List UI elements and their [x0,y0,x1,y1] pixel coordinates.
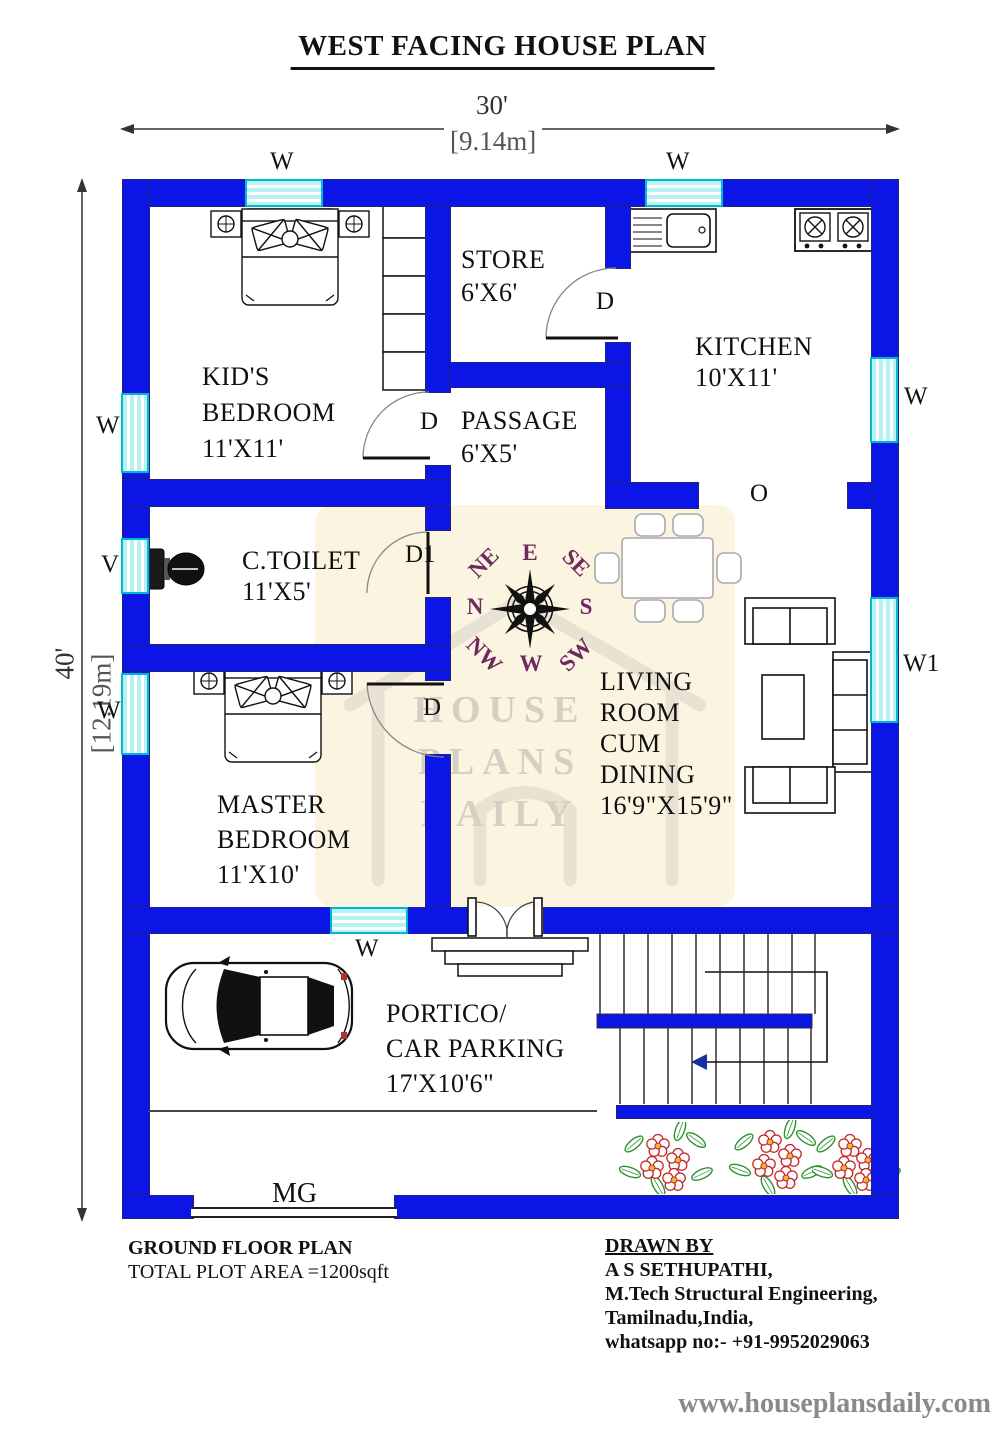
door-main-entrance [460,896,554,940]
window-master-bottom [330,907,408,934]
wall-interior [426,755,450,908]
compass-east: E [508,540,552,566]
label-door-kids: D [420,408,438,436]
window-kitchen-right [870,357,898,443]
room-label-living: LIVING ROOM CUM DINING 16'9"X15'9" [600,666,733,821]
wall-house-bottom [408,908,468,933]
room-label-passage: PASSAGE 6'X5' [461,404,578,470]
kitchen-sink [626,208,718,254]
staircase [595,930,873,1108]
label-window-kitchen-right: W [904,383,928,411]
ventilator-toilet [121,538,149,594]
wall-interior [606,206,630,268]
window-kids-left [121,393,149,473]
wall-bottom-left [123,1196,193,1218]
window-master-left [121,673,149,755]
floor-plan-canvas: WEST FACING HOUSE PLAN 30' [9.14m] 40' [… [0,0,1005,1433]
label-window-master-left: W [97,697,121,725]
wall-interior [123,645,450,671]
plan-name: GROUND FLOOR PLAN [128,1237,352,1260]
wall-interior [426,206,450,392]
label-door-store: D [596,288,614,316]
author-location: Tamilnadu,India, [605,1307,753,1330]
portico-edge-line [148,1110,597,1112]
dim-height-ft: 40' [50,639,81,689]
kids-bed [210,203,370,307]
label-door-master: D [423,694,441,722]
wall-interior [123,480,450,506]
dim-width-ft: 30' [476,90,508,121]
room-label-portico: PORTICO/ CAR PARKING 17'X10'6" [386,996,565,1101]
window-living-right [870,597,898,723]
dim-width-m: [9.14m] [444,126,542,157]
author-name: A S SETHUPATHI, [605,1259,773,1282]
wall-house-bottom [544,908,898,933]
kids-wardrobe [381,198,429,392]
page-title: WEST FACING HOUSE PLAN [290,30,715,70]
flower-bed-cluster [618,1122,718,1194]
compass-north: N [453,594,497,620]
label-main-gate: MG [272,1178,317,1210]
label-ventilator: V [101,551,119,579]
wall-top [123,180,898,206]
window-kids-top [245,179,323,207]
toilet-wc [145,544,207,594]
label-window-master-bottom: W [355,935,379,963]
label-window-kids-top: W [270,148,294,176]
website-url: www.houseplansdaily.com [678,1388,991,1420]
label-door-toilet: D1 [405,541,436,569]
sofa-set [740,590,885,820]
room-label-kitchen: KITCHEN 10'X11' [695,331,813,393]
wall-kitchen-bottom [848,483,872,508]
wall-flowerbed-edge [617,1106,873,1118]
room-label-toilet: C.TOILET 11'X5' [242,545,360,607]
room-label-kids-bedroom: KID'S BEDROOM 11'X11' [202,359,336,467]
entrance-steps [430,936,592,980]
wall-bottom-right [395,1196,898,1218]
compass-south: S [564,594,608,620]
label-window-living: W1 [903,650,939,678]
window-kitchen-top [645,179,723,207]
wall-house-bottom [123,908,330,933]
dining-table [593,512,743,624]
car-icon [162,955,357,1057]
author-qualification: M.Tech Structural Engineering, [605,1283,878,1306]
label-opening: O [750,480,768,508]
label-window-kids-left: W [96,412,120,440]
master-bed [193,660,353,764]
drawn-by-heading: DRAWN BY [605,1235,713,1258]
room-label-master-bedroom: MASTER BEDROOM 11'X10' [217,787,351,892]
label-window-kitchen-top: W [666,148,690,176]
room-label-store: STORE 6'X6' [461,243,545,309]
wall-interior [450,363,630,387]
author-contact: whatsapp no:- +91-9952029063 [605,1331,870,1354]
wall-kitchen-bottom [606,483,698,508]
plot-area: TOTAL PLOT AREA =1200sqft [128,1261,389,1284]
stove [794,208,876,254]
compass-west: W [509,651,553,677]
